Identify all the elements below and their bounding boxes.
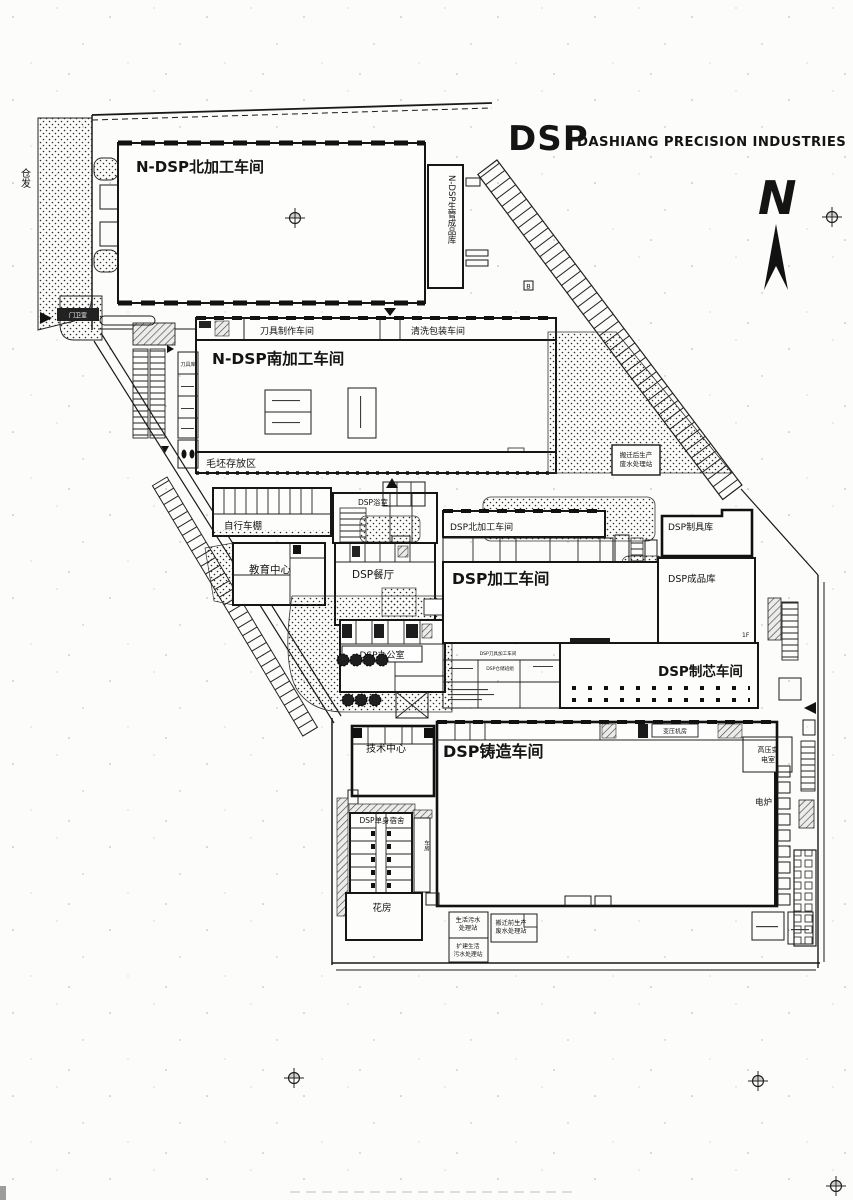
ladder-structure bbox=[782, 602, 798, 660]
label-pre-relocation-2: 废水处理站 bbox=[496, 927, 527, 935]
label-transformer-room: 变压机房 bbox=[663, 728, 687, 736]
lawn-patch bbox=[360, 516, 420, 542]
building-n-dsp-south-workshop: 刀具制作车间 清洗包装车间 N-DSP南加工车间 毛坯存放区 bbox=[196, 318, 556, 473]
label-electric-furnace: 电炉 bbox=[755, 797, 772, 808]
label-expanded-2: 污水处理站 bbox=[454, 950, 483, 958]
label-hv-substation-2: 电室 bbox=[761, 755, 775, 764]
label-tool-machining: DSP刀具加工车间 bbox=[480, 650, 517, 657]
label-foundry: DSP铸造车间 bbox=[443, 742, 544, 761]
hatched-structure bbox=[768, 598, 781, 640]
label-canteen: DSP餐厅 bbox=[352, 568, 394, 581]
tech-center: 技术中心 bbox=[348, 726, 434, 804]
label-post-relocation-2: 废水处理站 bbox=[620, 459, 653, 468]
tooling-warehouse bbox=[662, 510, 752, 556]
label-domestic-2: 处理站 bbox=[459, 924, 478, 932]
bike-shed: 自行车棚 bbox=[213, 488, 331, 537]
label-pre-relocation-1: 搬迁前生产 bbox=[496, 919, 527, 927]
label-storage-group: DSP仓储班组 bbox=[486, 665, 514, 672]
label-tool-store-room: 刀具库 bbox=[180, 361, 195, 368]
label-education-center: 教育中心 bbox=[249, 563, 291, 576]
dsp-north-workshop-strip: DSP北加工车间 bbox=[443, 511, 605, 537]
label-north-warehouse: N-DSP生管成品库 bbox=[446, 175, 456, 245]
label-tech-center: 技术中心 bbox=[366, 742, 406, 755]
hatched-structure bbox=[799, 800, 814, 828]
label-domestic-1: 生活污水 bbox=[456, 916, 482, 924]
site-plan-scan: DSP DASHIANG PRECISION INDUSTRIES N 仓发 B bbox=[0, 0, 853, 1200]
label-blank-storage: 毛坯存放区 bbox=[206, 457, 256, 470]
company-name: DASHIANG PRECISION INDUSTRIES bbox=[577, 135, 846, 150]
label-north-workshop: N-DSP北加工车间 bbox=[136, 158, 264, 176]
street-name-vertical: 仓发 bbox=[19, 167, 31, 189]
label-cleaning-packing: 清洗包装车间 bbox=[411, 325, 465, 337]
ladder-structure bbox=[801, 741, 815, 791]
label-garage: 车房 bbox=[423, 839, 430, 853]
label-core-workshop: DSP制芯车间 bbox=[658, 663, 743, 680]
station-post-relocation: 搬迁后生产 废水处理站 bbox=[612, 445, 660, 475]
label-post-relocation-1: 搬迁后生产 bbox=[620, 450, 653, 459]
scan-smudge bbox=[0, 1186, 6, 1200]
label-finished-goods: DSP成品库 bbox=[668, 573, 716, 585]
foundry-workshop: 变压机房 DSP铸造车间 高压变 电室 电炉 bbox=[437, 722, 792, 906]
machining-workshop-block: DSP加工车间 DSP成品库 1F bbox=[443, 558, 755, 648]
label-machining-workshop: DSP加工车间 bbox=[452, 569, 549, 588]
marker-b-label: B bbox=[526, 283, 530, 291]
label-tool-making: 刀具制作车间 bbox=[260, 325, 314, 337]
label-guard-house: 门卫室 bbox=[69, 312, 87, 320]
label-south-workshop: N-DSP南加工车间 bbox=[212, 349, 344, 368]
north-letter: N bbox=[758, 171, 797, 225]
label-dsp-north-workshop: DSP北加工车间 bbox=[450, 521, 513, 533]
label-dormitory: DSP单身宿舍 bbox=[359, 815, 405, 825]
label-tooling-warehouse: DSP制具库 bbox=[668, 521, 713, 533]
core-workshop: DSP制芯车间 bbox=[560, 643, 758, 708]
site-plan-drawing: DSP DASHIANG PRECISION INDUSTRIES N 仓发 B bbox=[0, 0, 853, 1200]
label-expanded-1: 扩建生活 bbox=[456, 942, 479, 950]
label-hv-substation-1: 高压变 bbox=[758, 745, 779, 754]
label-bike-shed: 自行车棚 bbox=[224, 520, 262, 532]
label-greenhouse: 花房 bbox=[372, 902, 391, 914]
label-floor-1f: 1F bbox=[742, 632, 750, 639]
